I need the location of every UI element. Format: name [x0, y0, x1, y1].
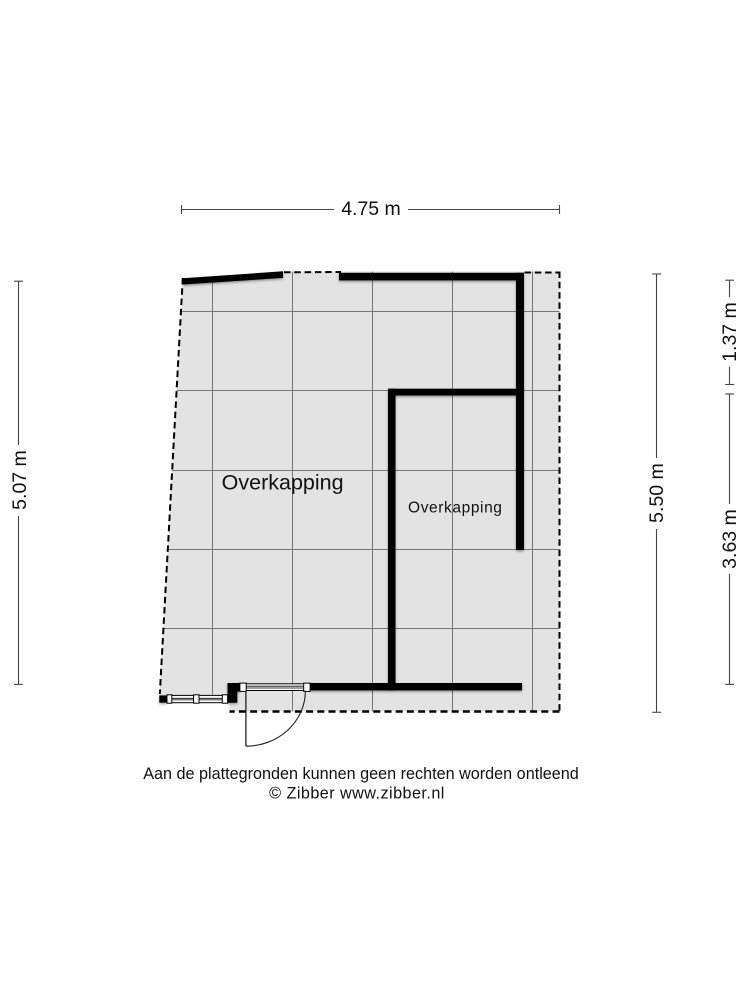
- svg-text:Overkapping: Overkapping: [222, 470, 344, 494]
- svg-text:5.07 m: 5.07 m: [9, 450, 31, 510]
- svg-text:3.63 m: 3.63 m: [719, 509, 741, 569]
- svg-text:Aan de plattegronden kunnen ge: Aan de plattegronden kunnen geen rechten…: [143, 765, 579, 783]
- svg-text:5.50 m: 5.50 m: [646, 463, 668, 523]
- svg-text:© Zibber www.zibber.nl: © Zibber www.zibber.nl: [269, 785, 445, 803]
- svg-text:1.37 m: 1.37 m: [719, 302, 741, 362]
- svg-text:Overkapping: Overkapping: [408, 500, 502, 517]
- svg-text:4.75 m: 4.75 m: [341, 198, 401, 220]
